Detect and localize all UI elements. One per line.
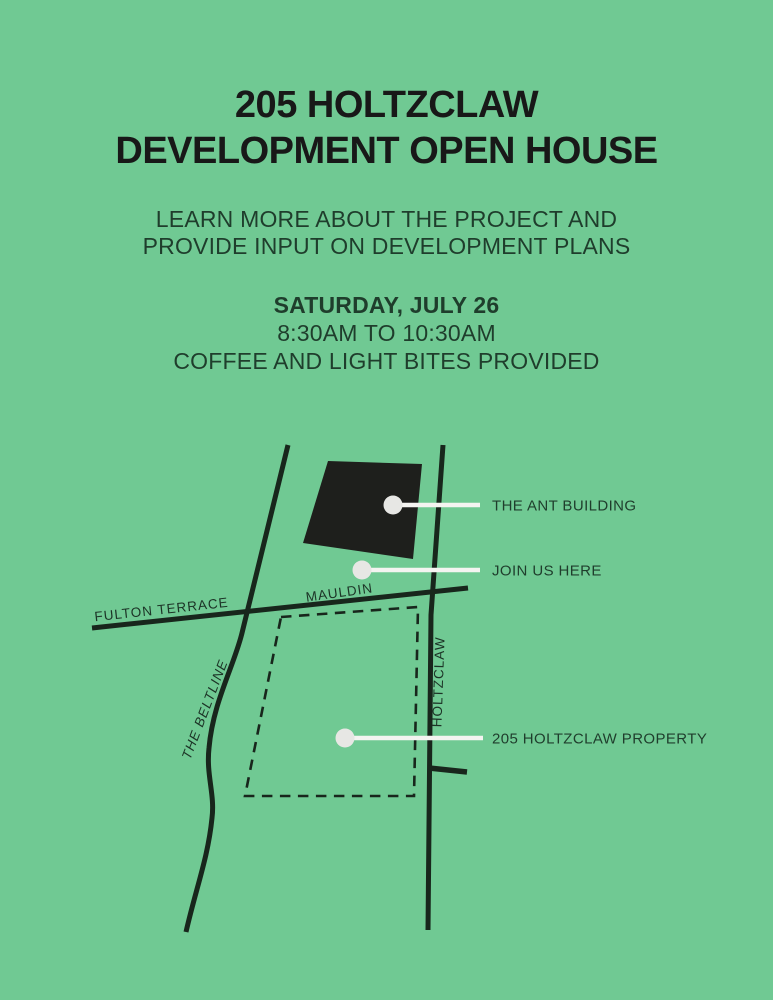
callout-join-us-here: JOIN US HERE — [353, 561, 602, 580]
marker-dot-icon — [336, 729, 355, 748]
road-label-holtzclaw: HOLTZCLAW — [429, 636, 447, 727]
callout-205-holtzclaw-property: 205 HOLTZCLAW PROPERTY — [336, 729, 708, 748]
ant-building-shape — [303, 461, 422, 559]
callout-label: 205 HOLTZCLAW PROPERTY — [492, 731, 707, 748]
road-beltline — [186, 445, 288, 932]
road-holtzclaw-spur — [429, 768, 467, 772]
callout-label: THE ANT BUILDING — [492, 498, 636, 515]
marker-dot-icon — [353, 561, 372, 580]
marker-dot-icon — [384, 496, 403, 515]
callout-label: JOIN US HERE — [492, 563, 602, 580]
road-label-beltline: THE BELTLINE — [179, 657, 231, 761]
callout-ant-building: THE ANT BUILDING — [384, 496, 637, 515]
site-map: FULTON TERRACE MAULDIN THE BELTLINE HOLT… — [0, 0, 773, 1000]
flyer: 205 HOLTZCLAW DEVELOPMENT OPEN HOUSE LEA… — [0, 0, 773, 1000]
property-boundary-dashed — [245, 607, 418, 796]
